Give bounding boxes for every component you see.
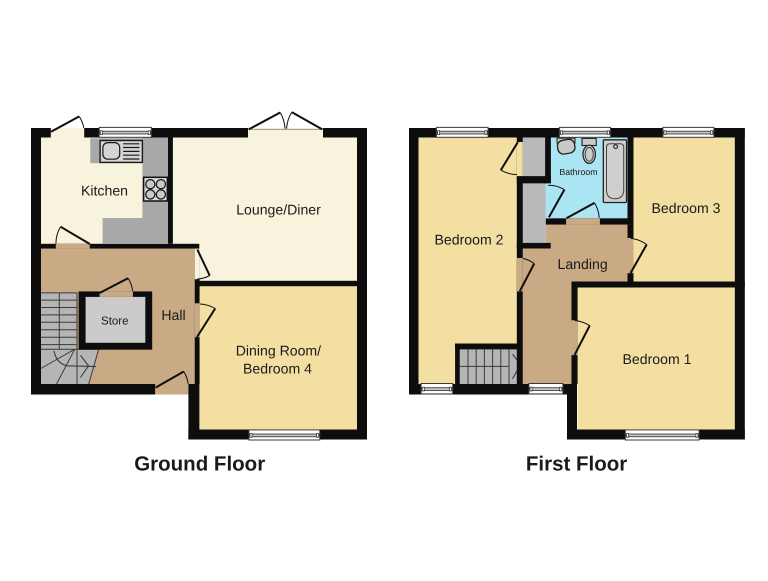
svg-text:Ground Floor: Ground Floor [134, 453, 265, 476]
svg-text:Bedroom 2: Bedroom 2 [435, 231, 504, 247]
svg-text:Hall: Hall [161, 307, 185, 323]
svg-text:Bedroom 3: Bedroom 3 [652, 200, 721, 216]
svg-text:Kitchen: Kitchen [81, 183, 128, 199]
svg-text:Store: Store [101, 316, 129, 328]
svg-text:Bedroom 4: Bedroom 4 [243, 361, 312, 377]
svg-text:Landing: Landing [558, 256, 608, 272]
svg-text:Lounge/Diner: Lounge/Diner [236, 201, 321, 217]
svg-text:Bathroom: Bathroom [559, 167, 597, 177]
svg-text:Bedroom 1: Bedroom 1 [623, 351, 692, 367]
svg-text:Dining Room/: Dining Room/ [236, 342, 321, 358]
svg-text:First Floor: First Floor [526, 453, 627, 476]
